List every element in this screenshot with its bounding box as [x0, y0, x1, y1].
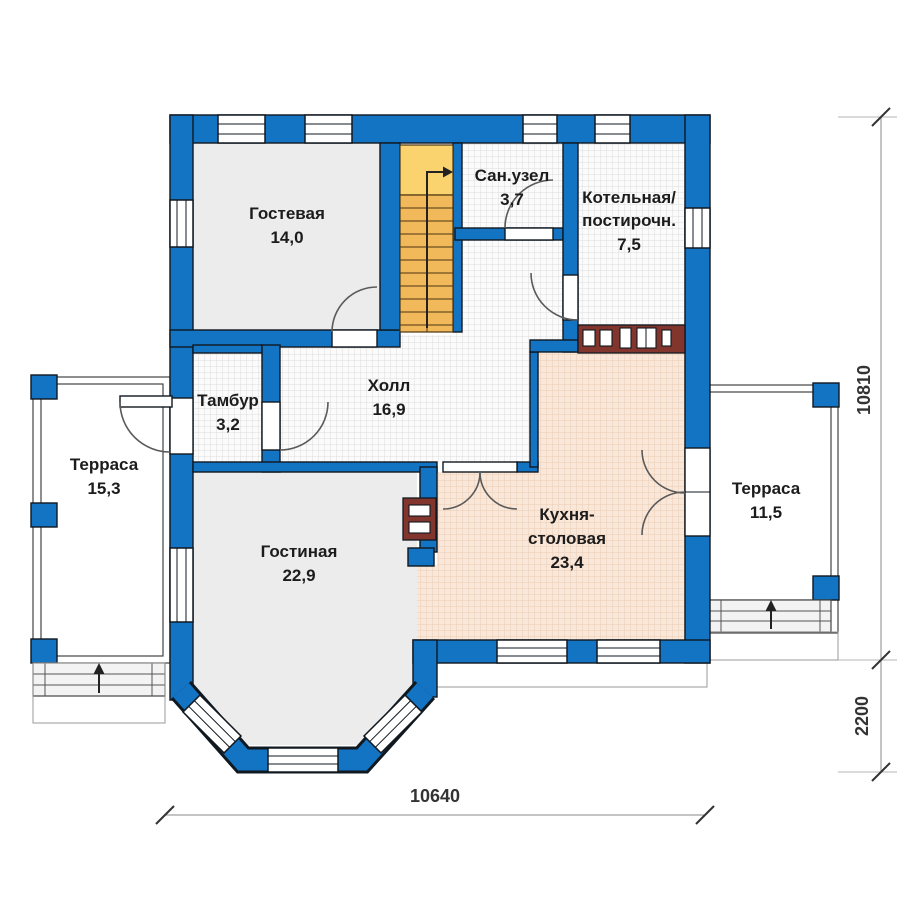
- south-porch-strip: [437, 663, 707, 687]
- terrace-left-post-mid: [31, 503, 57, 527]
- window-boiler-north: [595, 115, 630, 143]
- label-kitchen-line2: столовая: [528, 529, 606, 548]
- label-living-room-area: 22,9: [282, 566, 315, 585]
- dimension-height-total: 10810: [854, 365, 874, 415]
- window-boiler-east: [685, 208, 710, 248]
- window-guest-west: [170, 200, 193, 247]
- label-hall-area: 16,9: [372, 400, 405, 419]
- label-living-room: Гостиная: [261, 542, 338, 561]
- window-living-west: [170, 548, 193, 622]
- label-boiler-line2: постирочн.: [582, 211, 676, 230]
- label-kitchen-area: 23,4: [550, 553, 584, 572]
- label-boiler-line1: Котельная/: [582, 188, 676, 207]
- floor-plan-page: Гостевая 14,0 Сан.узел 3,7 Котельная/ по…: [0, 0, 900, 900]
- label-boiler-area: 7,5: [617, 235, 641, 254]
- dimension-height-bay: 2200: [852, 696, 872, 736]
- wall-living-north: [193, 462, 437, 472]
- fireplace: [403, 498, 436, 540]
- sink-bowl-2: [600, 330, 612, 346]
- window-kitchen-south-2: [597, 640, 660, 663]
- label-guest-room: Гостевая: [249, 204, 325, 223]
- column-living-kitchen: [408, 548, 434, 566]
- terrace-right-post-bottom: [813, 576, 839, 600]
- terrace-left-post-top: [31, 375, 57, 399]
- room-living-floor: [193, 470, 417, 745]
- label-terrace-right: Терраса: [732, 479, 801, 498]
- terrace-right-post-top: [813, 383, 839, 407]
- label-terrace-right-area: 11,5: [750, 503, 782, 522]
- label-tambour-area: 3,2: [216, 415, 240, 434]
- wall-guest-east: [380, 143, 400, 330]
- window-kitchen-south-1: [497, 640, 567, 663]
- label-guest-room-area: 14,0: [270, 228, 303, 247]
- counter-fixture: [662, 330, 671, 346]
- staircase: [400, 145, 453, 332]
- room-bathroom-floor: [462, 143, 563, 228]
- sink-bowl-1: [583, 330, 595, 346]
- label-hall: Холл: [368, 376, 411, 395]
- label-terrace-left: Терраса: [70, 455, 139, 474]
- floor-plan-drawing: Гостевая 14,0 Сан.узел 3,7 Котельная/ по…: [0, 0, 900, 900]
- room-boiler-floor: [578, 143, 685, 325]
- window-guest-north-1: [218, 115, 265, 143]
- wall-east: [685, 115, 710, 663]
- label-bathroom: Сан.узел: [475, 166, 550, 185]
- window-bathroom-north: [523, 115, 557, 143]
- wall-kitchen-north: [530, 340, 578, 352]
- label-bathroom-area: 3,7: [500, 190, 524, 209]
- terrace-left-post-bottom: [31, 639, 57, 663]
- wall-hall-kitchen: [530, 352, 538, 467]
- wall-tambour-north: [193, 345, 262, 353]
- label-tambour: Тамбур: [197, 391, 259, 410]
- label-terrace-left-area: 15,3: [87, 479, 120, 498]
- window-guest-north-2: [305, 115, 352, 143]
- window-bay-south: [268, 748, 338, 772]
- label-kitchen-line1: Кухня-: [539, 505, 594, 524]
- counter-fixture: [620, 328, 631, 348]
- kitchen-counter: [578, 325, 685, 353]
- dimension-width-total: 10640: [410, 786, 460, 806]
